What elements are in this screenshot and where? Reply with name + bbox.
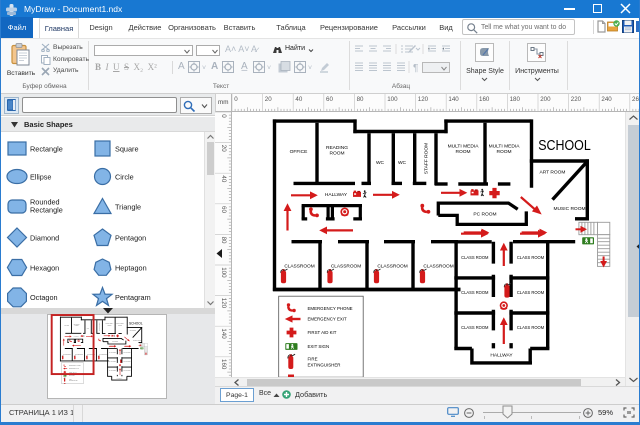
svg-text:Diamond: Diamond — [30, 234, 59, 243]
svg-text:Pentagon: Pentagon — [115, 234, 146, 243]
svg-text:100: 100 — [387, 96, 398, 103]
svg-text:20: 20 — [220, 145, 227, 152]
svg-text:20: 20 — [265, 96, 272, 103]
svg-text:60: 60 — [220, 206, 227, 213]
svg-text:Hexagon: Hexagon — [30, 264, 59, 273]
svg-text:260: 260 — [632, 96, 640, 103]
svg-text:0: 0 — [220, 114, 227, 118]
svg-text:0: 0 — [234, 96, 238, 103]
svg-text:Circle: Circle — [115, 173, 134, 182]
svg-text:Heptagon: Heptagon — [115, 264, 147, 273]
svg-text:40: 40 — [220, 175, 227, 182]
svg-text:80: 80 — [357, 96, 364, 103]
svg-text:140: 140 — [220, 328, 227, 339]
svg-text:220: 220 — [571, 96, 582, 103]
svg-text:140: 140 — [448, 96, 459, 103]
svg-text:Triangle: Triangle — [115, 203, 141, 212]
svg-text:160: 160 — [220, 359, 227, 370]
svg-text:120: 120 — [418, 96, 429, 103]
svg-text:Square: Square — [115, 145, 139, 154]
svg-text:80: 80 — [220, 237, 227, 244]
svg-text:160: 160 — [479, 96, 490, 103]
svg-text:240: 240 — [601, 96, 612, 103]
svg-text:¶: ¶ — [413, 63, 418, 73]
svg-text:180: 180 — [510, 96, 521, 103]
svg-text:40: 40 — [295, 96, 302, 103]
svg-text:120: 120 — [220, 298, 227, 309]
svg-text:60: 60 — [326, 96, 333, 103]
svg-text:Rectangle: Rectangle — [30, 206, 63, 215]
svg-text:200: 200 — [540, 96, 551, 103]
svg-text:100: 100 — [220, 267, 227, 278]
svg-text:Rectangle: Rectangle — [30, 145, 63, 154]
svg-text:Ellipse: Ellipse — [30, 173, 52, 182]
svg-text:Octagon: Octagon — [30, 293, 58, 302]
svg-text:Pentagram: Pentagram — [115, 293, 151, 302]
